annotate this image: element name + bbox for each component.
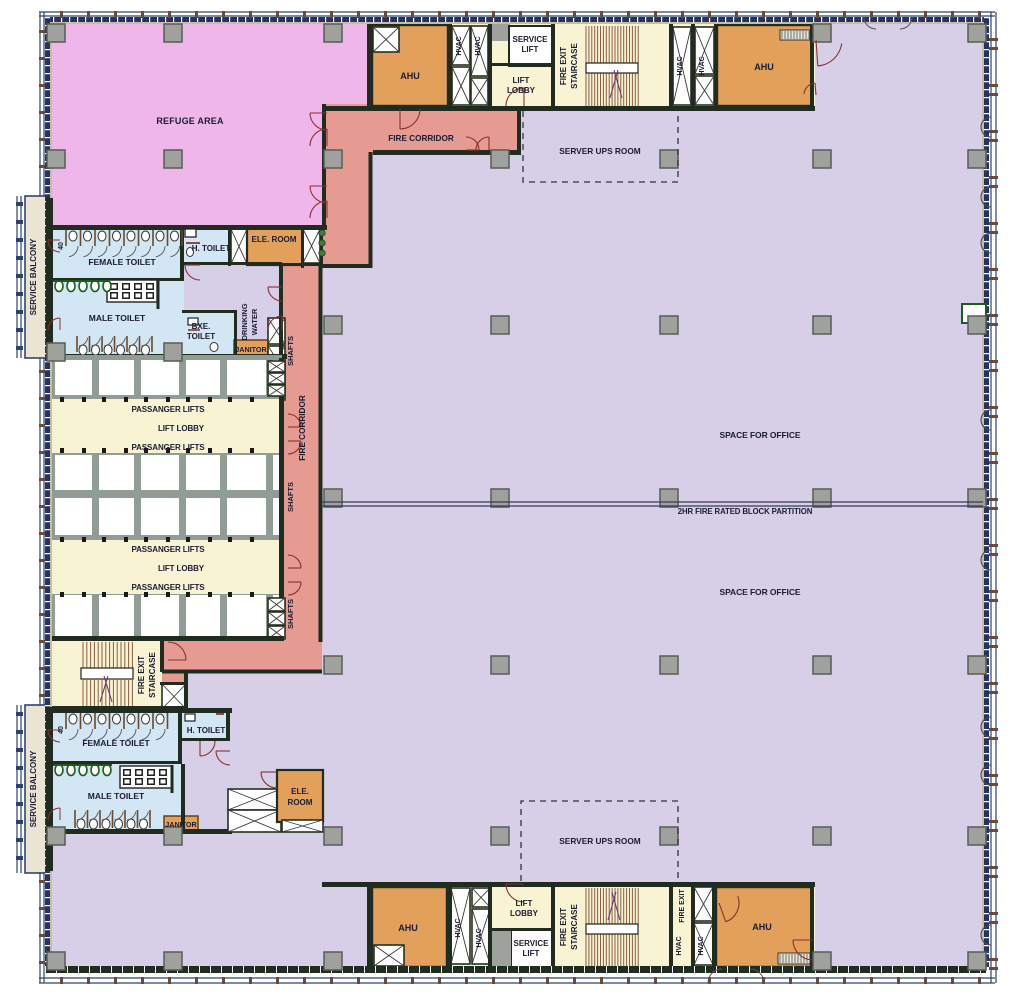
svg-text:PASSANGER LIFTS: PASSANGER LIFTS bbox=[131, 545, 205, 554]
svg-text:LIFT: LIFT bbox=[513, 76, 530, 85]
svg-text:MALE TOILET: MALE TOILET bbox=[89, 313, 146, 323]
svg-text:STAIRCASE: STAIRCASE bbox=[570, 904, 579, 950]
svg-text:ROOM: ROOM bbox=[288, 798, 313, 807]
svg-text:HVAC: HVAC bbox=[676, 936, 683, 955]
svg-text:AHU: AHU bbox=[398, 923, 418, 933]
svg-text:SERVICE BALCONY: SERVICE BALCONY bbox=[29, 750, 38, 827]
svg-text:H. TOILET: H. TOILET bbox=[187, 726, 226, 735]
svg-text:ELE.: ELE. bbox=[291, 787, 309, 796]
svg-text:40: 40 bbox=[58, 242, 65, 250]
svg-text:LOBBY: LOBBY bbox=[507, 86, 536, 95]
svg-text:DRINKING: DRINKING bbox=[240, 303, 249, 340]
svg-text:FIRE CORRIDOR: FIRE CORRIDOR bbox=[298, 395, 307, 461]
svg-text:HVAC: HVAC bbox=[455, 918, 462, 937]
svg-text:JANITOR: JANITOR bbox=[165, 820, 197, 829]
svg-text:PASSANGER LIFTS: PASSANGER LIFTS bbox=[131, 405, 205, 414]
svg-text:LOBBY: LOBBY bbox=[510, 909, 539, 918]
svg-text:LIFT LOBBY: LIFT LOBBY bbox=[158, 564, 205, 573]
svg-text:SHAFTS: SHAFTS bbox=[286, 336, 295, 366]
svg-text:SERVICE: SERVICE bbox=[514, 939, 550, 948]
svg-text:ELE. ROOM: ELE. ROOM bbox=[252, 235, 297, 244]
svg-text:H. TOILET: H. TOILET bbox=[192, 244, 231, 253]
svg-text:SHAFTS: SHAFTS bbox=[286, 599, 295, 629]
svg-text:SERVICE: SERVICE bbox=[513, 35, 549, 44]
svg-text:STAIRCASE: STAIRCASE bbox=[570, 43, 579, 89]
svg-text:LIFT: LIFT bbox=[516, 899, 533, 908]
svg-text:SPACE FOR OFFICE: SPACE FOR OFFICE bbox=[720, 430, 801, 440]
svg-text:FEMALE TOILET: FEMALE TOILET bbox=[88, 257, 156, 267]
svg-text:HVAC: HVAC bbox=[677, 56, 684, 75]
svg-text:LIFT: LIFT bbox=[523, 949, 540, 958]
svg-text:SERVER UPS ROOM: SERVER UPS ROOM bbox=[559, 146, 641, 156]
svg-text:FIRE EXIT: FIRE EXIT bbox=[679, 889, 686, 923]
svg-text:LIFT: LIFT bbox=[522, 45, 539, 54]
svg-text:FIRE EXIT: FIRE EXIT bbox=[137, 656, 146, 694]
svg-text:STAIRCASE: STAIRCASE bbox=[148, 652, 157, 698]
svg-text:FIRE EXIT: FIRE EXIT bbox=[559, 908, 568, 946]
svg-text:JANITOR: JANITOR bbox=[235, 345, 267, 354]
svg-text:FEMALE TOILET: FEMALE TOILET bbox=[82, 738, 150, 748]
svg-text:FIRE CORRIDOR: FIRE CORRIDOR bbox=[388, 134, 454, 143]
svg-text:AHU: AHU bbox=[400, 71, 420, 81]
svg-text:PASSANGER LIFTS: PASSANGER LIFTS bbox=[131, 583, 205, 592]
svg-text:WATER: WATER bbox=[250, 308, 259, 335]
svg-text:40: 40 bbox=[58, 726, 65, 734]
svg-text:HVAC: HVAC bbox=[456, 36, 463, 55]
svg-text:TOILET: TOILET bbox=[187, 332, 215, 341]
svg-text:FIRE EXIT: FIRE EXIT bbox=[559, 47, 568, 85]
svg-text:HVAC: HVAC bbox=[476, 928, 483, 947]
svg-text:2HR FIRE RATED BLOCK PARTITION: 2HR FIRE RATED BLOCK PARTITION bbox=[678, 507, 813, 516]
svg-text:LIFT LOBBY: LIFT LOBBY bbox=[158, 424, 205, 433]
svg-text:HVAC: HVAC bbox=[699, 56, 706, 75]
svg-text:REFUGE AREA: REFUGE AREA bbox=[156, 116, 224, 126]
svg-text:SPACE FOR OFFICE: SPACE FOR OFFICE bbox=[720, 587, 801, 597]
svg-text:HVAC: HVAC bbox=[475, 36, 482, 55]
svg-text:AHU: AHU bbox=[754, 62, 774, 72]
svg-text:MALE TOILET: MALE TOILET bbox=[88, 791, 145, 801]
svg-text:SHAFTS: SHAFTS bbox=[286, 482, 295, 512]
svg-text:SERVICE BALCONY: SERVICE BALCONY bbox=[29, 238, 38, 315]
svg-text:HVAC: HVAC bbox=[698, 936, 705, 955]
svg-text:BXE.: BXE. bbox=[192, 322, 211, 331]
svg-text:SERVER UPS ROOM: SERVER UPS ROOM bbox=[559, 836, 641, 846]
svg-text:PASSANGER LIFTS: PASSANGER LIFTS bbox=[131, 443, 205, 452]
svg-text:AHU: AHU bbox=[752, 922, 772, 932]
